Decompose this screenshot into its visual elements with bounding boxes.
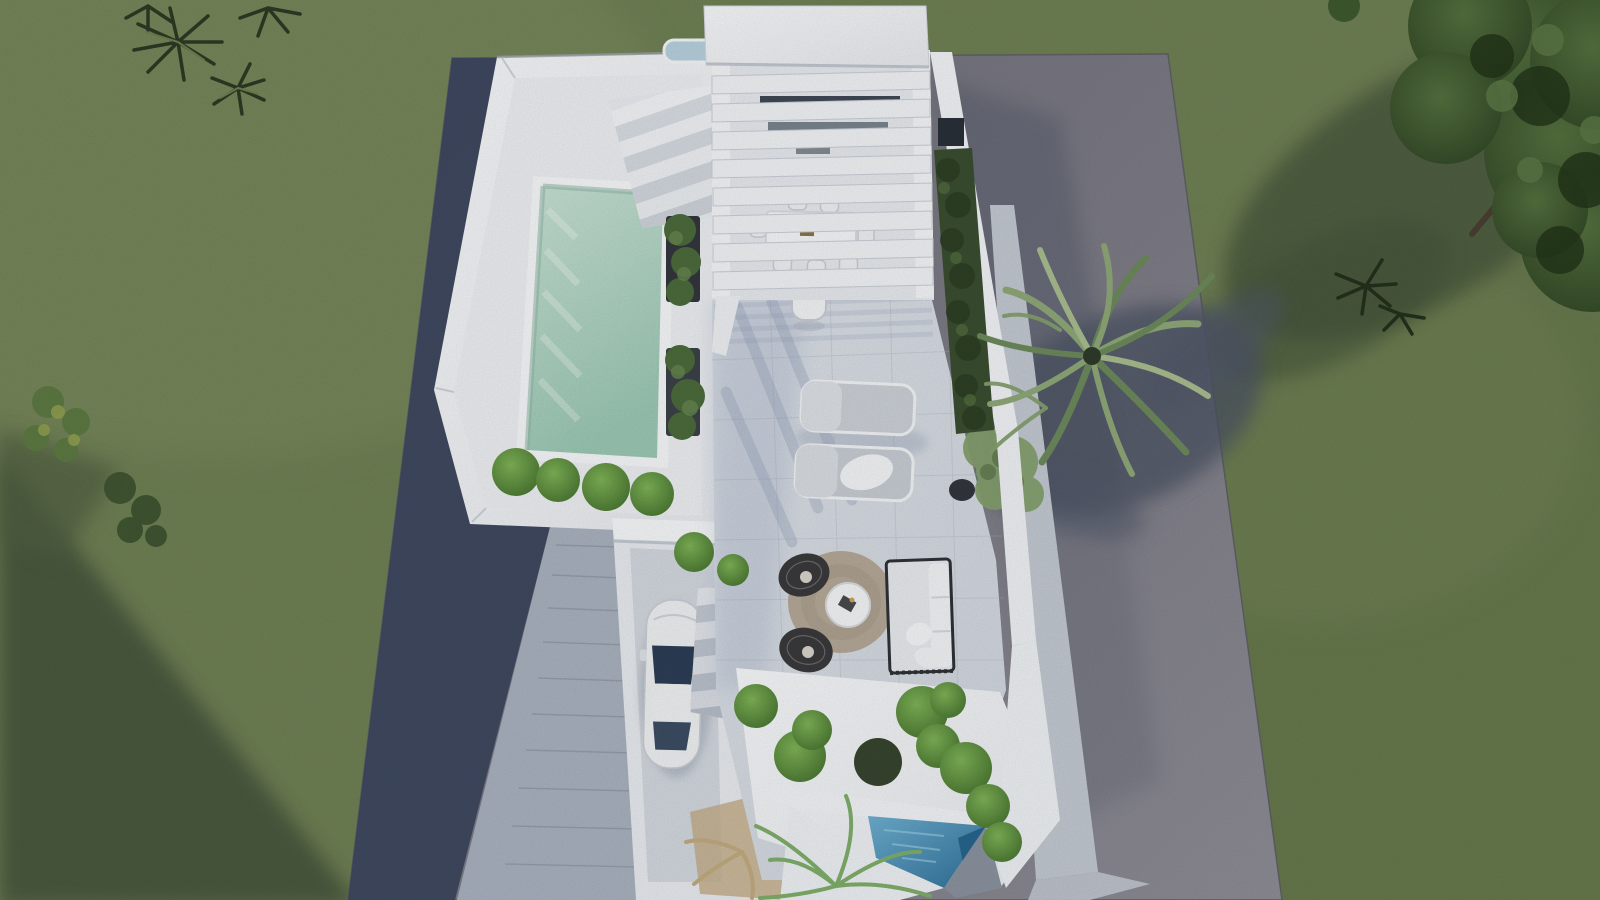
render-viewport <box>0 0 1600 900</box>
film-grain <box>0 0 1600 900</box>
villa-aerial-render <box>0 0 1600 900</box>
